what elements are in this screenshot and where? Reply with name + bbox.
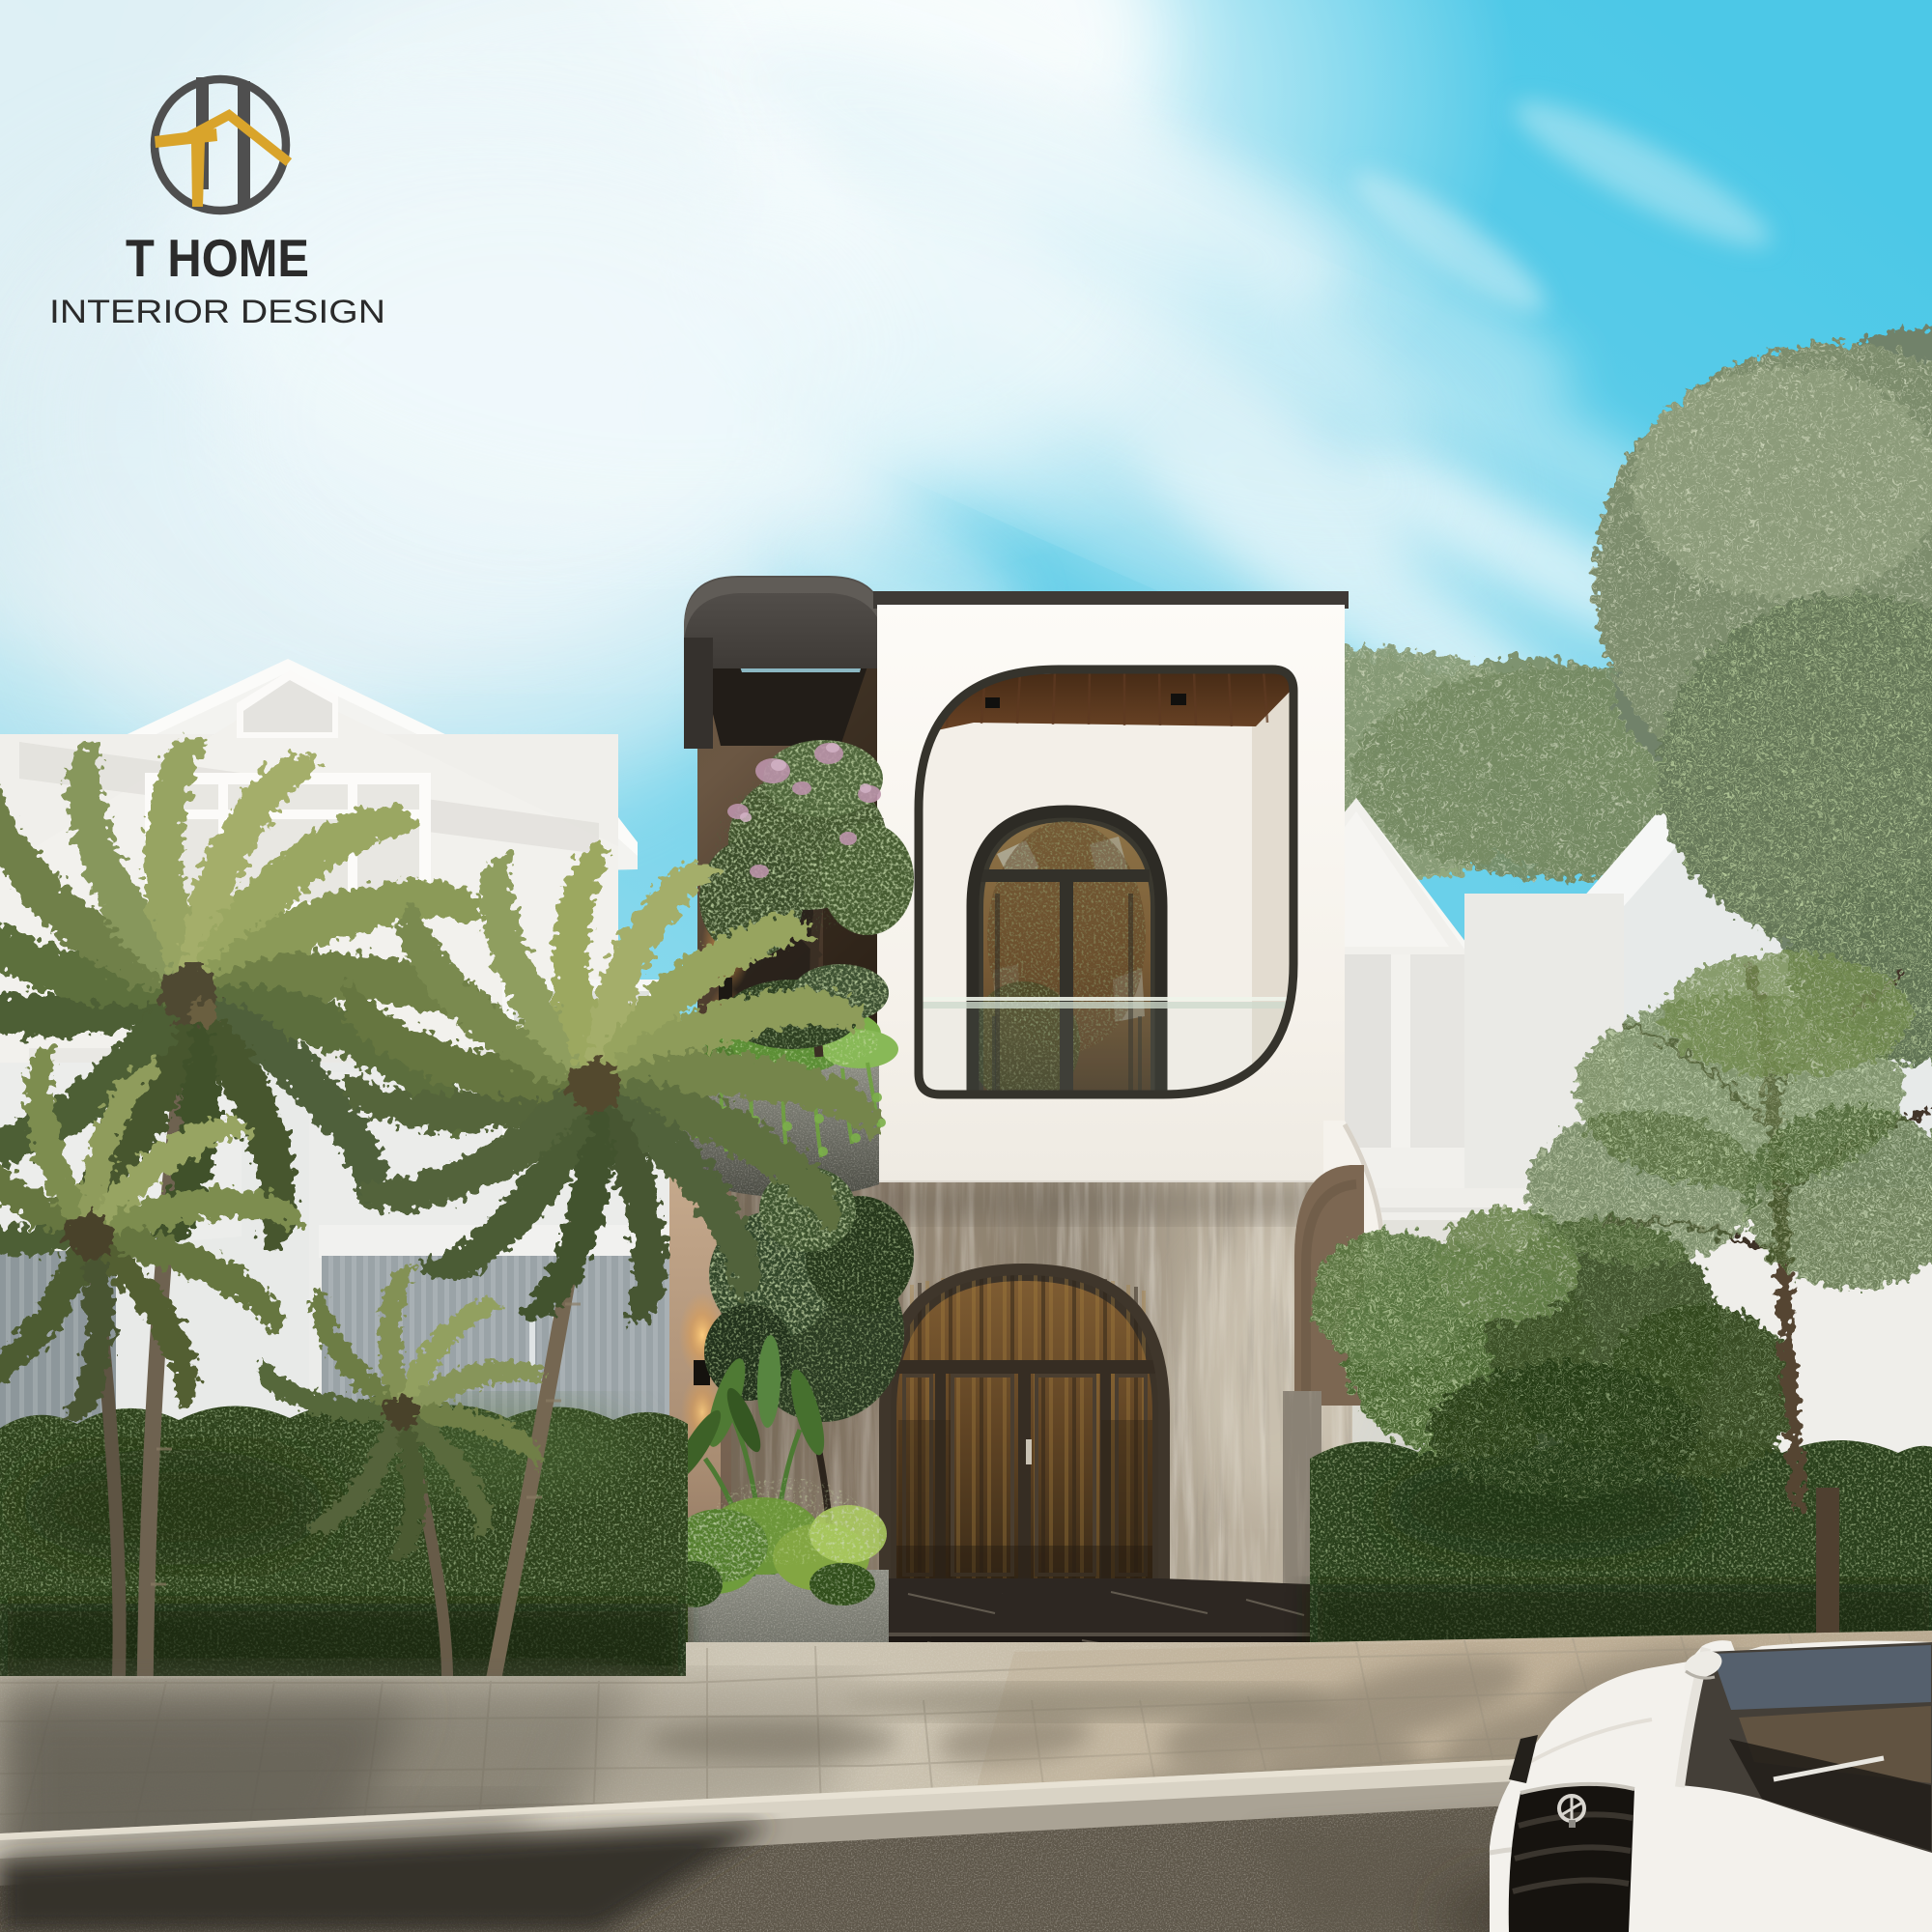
svg-text:INTERIOR DESIGN: INTERIOR DESIGN	[49, 294, 385, 330]
svg-text:T HOME: T HOME	[126, 228, 309, 288]
